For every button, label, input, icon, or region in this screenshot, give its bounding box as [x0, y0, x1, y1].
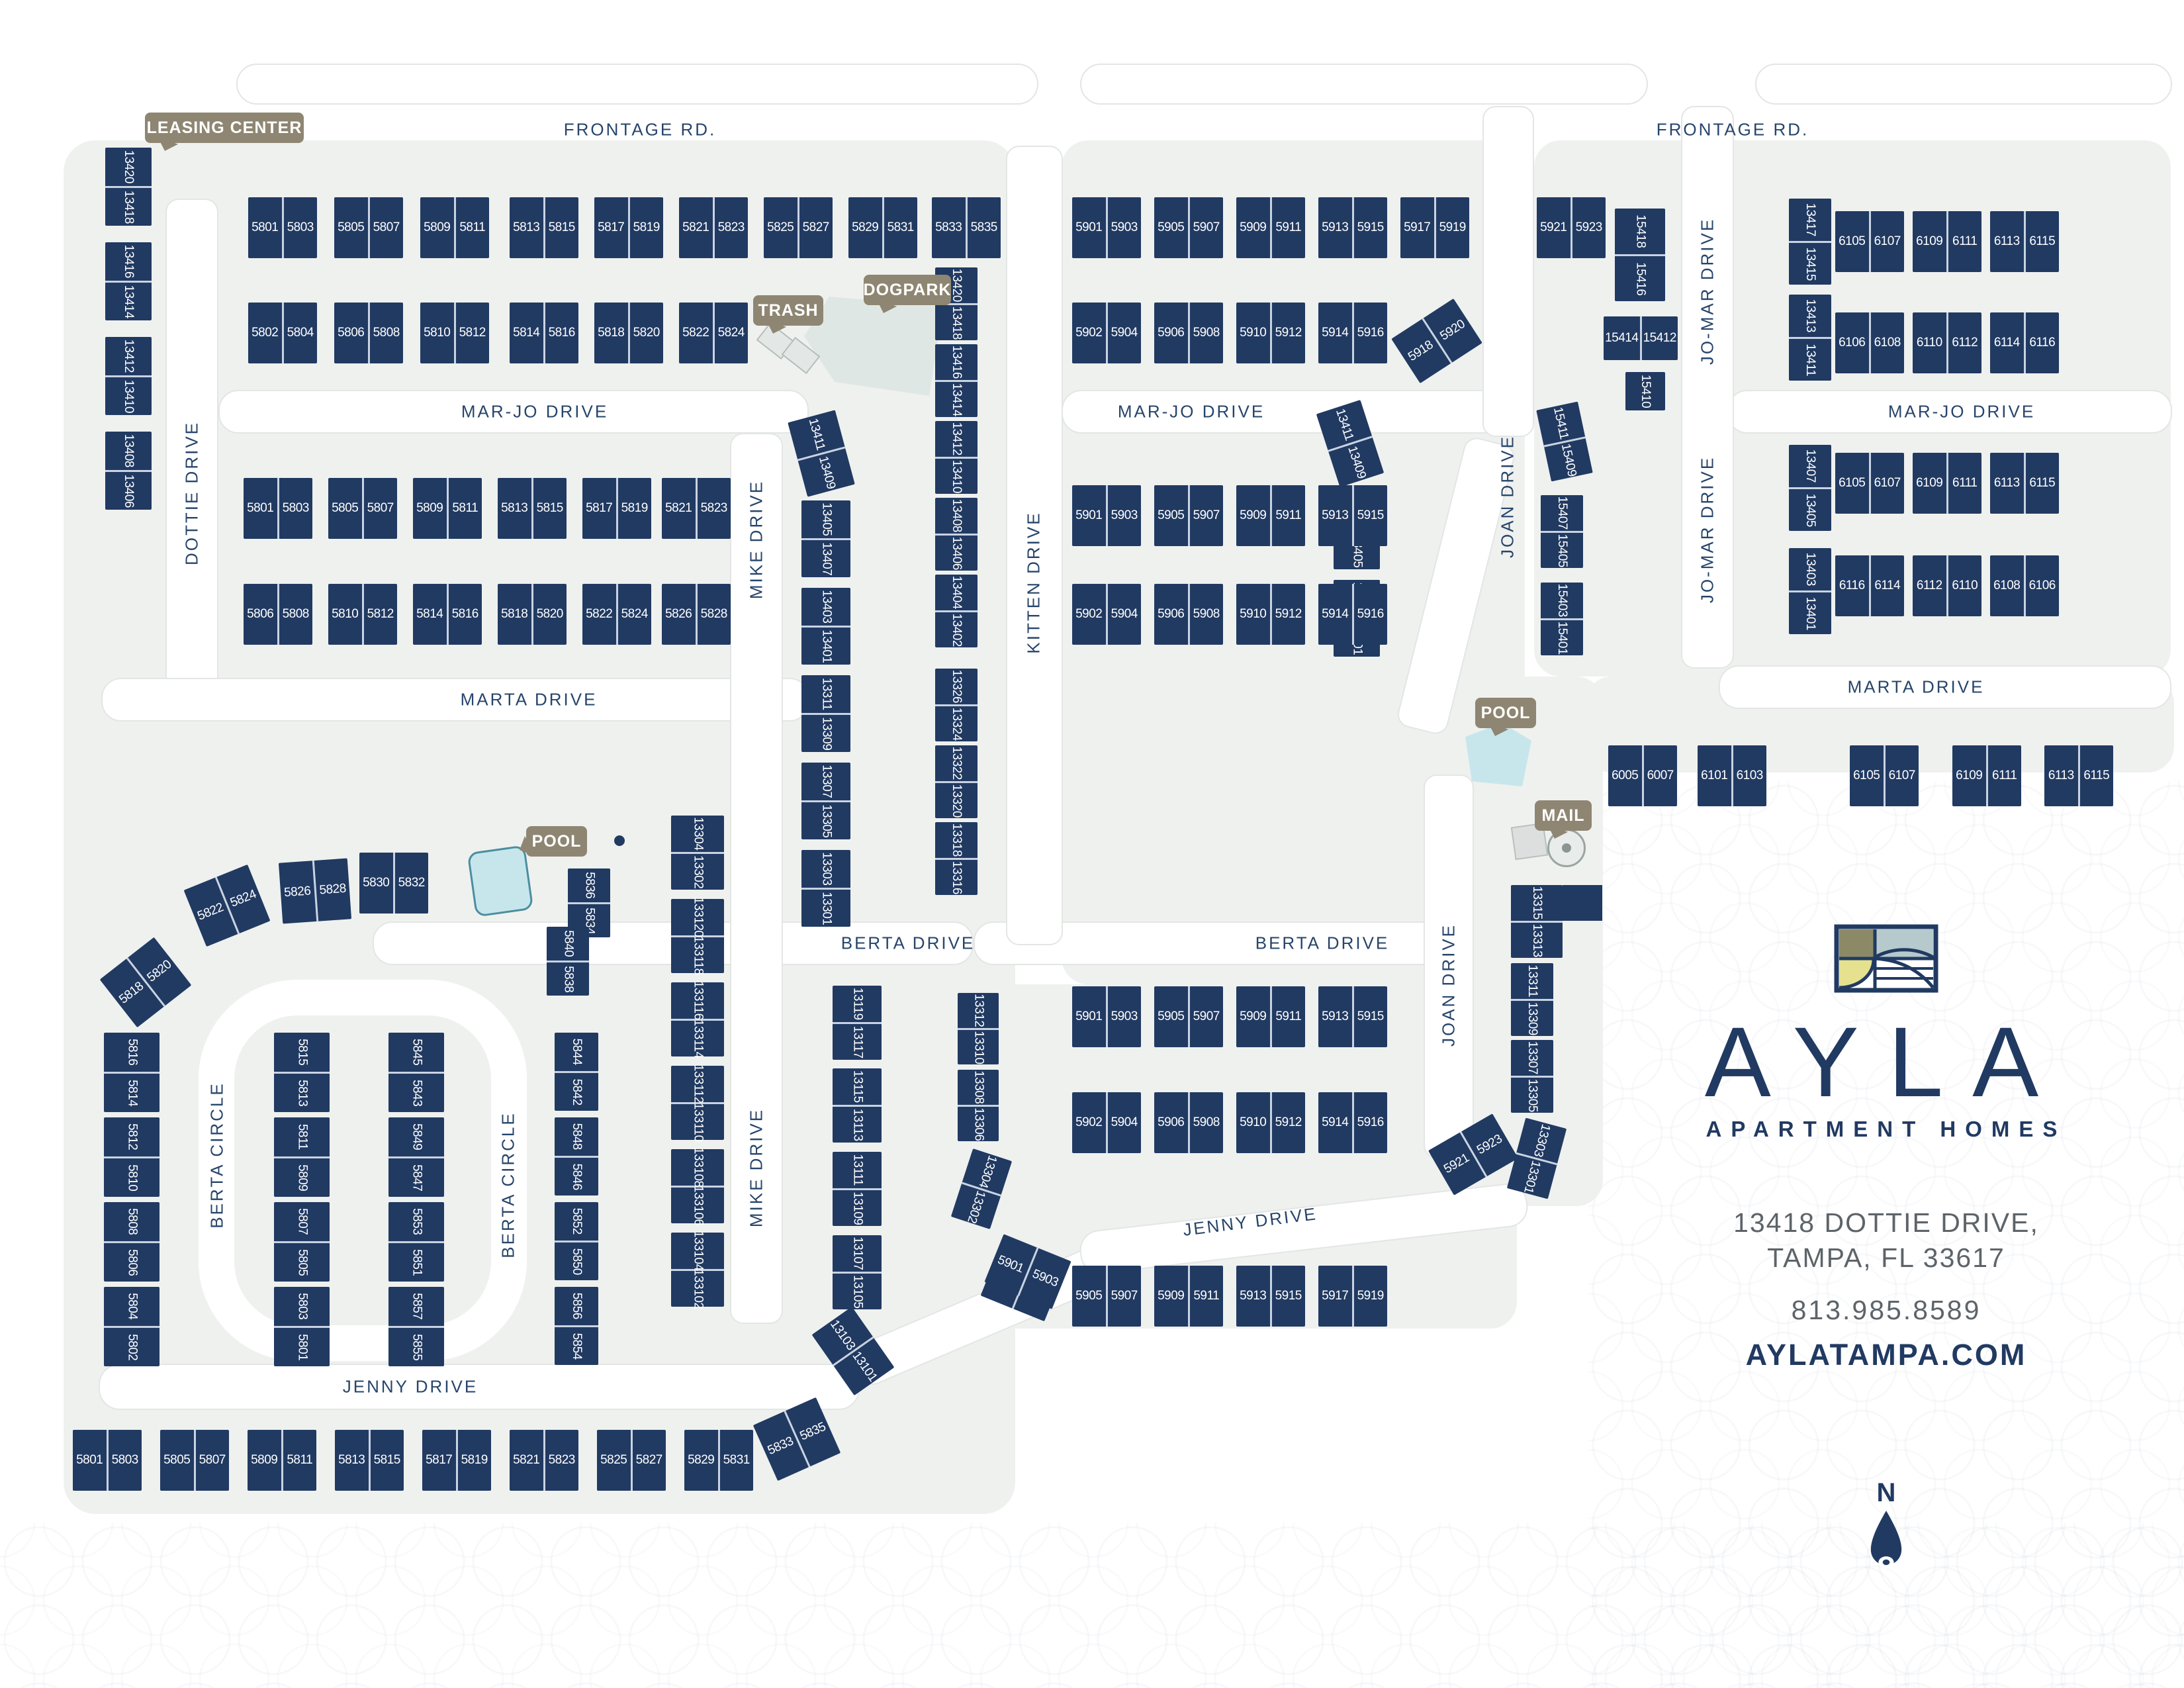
unit-number: 13309 [1514, 997, 1550, 1039]
building-5914-5916: 59145916 [1318, 1092, 1387, 1153]
unit-number: 5802 [248, 303, 282, 363]
unit-number: 5907 [1190, 986, 1224, 1047]
unit-number: 13406 [109, 467, 148, 514]
unit-number: 5902 [1072, 1092, 1106, 1153]
street-label-jo-mar-drive: JO-MAR DRIVE [1698, 218, 1718, 365]
unit-number: 5914 [1318, 584, 1352, 645]
unit-number: 6116 [1835, 555, 1869, 616]
building-13115-13113: 1311513113 [833, 1068, 882, 1143]
building-5902-5904: 59025904 [1072, 584, 1141, 645]
unit-number: 13417 [1789, 199, 1831, 241]
unit-number: 13416 [938, 341, 974, 383]
building-6113-6115: 61136115 [1990, 211, 2059, 272]
unit-number: 5820 [630, 303, 664, 363]
unit-number: 5908 [1190, 1092, 1224, 1153]
building-5814-5816: 58145816 [510, 303, 578, 363]
unit-number: 5825 [764, 197, 797, 258]
building-5826-5828: 58265828 [279, 858, 351, 923]
unit-number: 5817 [422, 1430, 456, 1491]
unit-number: 5805 [334, 197, 368, 258]
unit-number: 13402 [938, 608, 974, 651]
unit-number: 5905 [1154, 986, 1188, 1047]
street-label-mike-drive: MIKE DRIVE [747, 1108, 767, 1227]
unit-number: 5909 [1236, 485, 1270, 546]
building-5906-5908: 59065908 [1154, 584, 1223, 645]
badge-label: MAIL [1541, 806, 1584, 825]
building-wing [1563, 885, 1602, 921]
unit-number: 13301 [807, 884, 845, 933]
unit-number: 13305 [807, 796, 845, 845]
unit-number: 5809 [413, 478, 447, 539]
unit-number: 5805 [160, 1430, 194, 1491]
unit-number: 5804 [284, 303, 318, 363]
building-13315-13313: 1331513313 [1511, 885, 1563, 958]
building-13412-13410: 1341213410 [105, 337, 152, 415]
street-label-berta-drive: BERTA DRIVE [1255, 933, 1390, 954]
unit-number: 6114 [1871, 555, 1905, 616]
unit-number: 5820 [533, 584, 567, 645]
unit-number: 5806 [334, 303, 368, 363]
building-13407-13405: 1340713405 [1789, 445, 1831, 531]
unit-number: 5914 [1318, 1092, 1352, 1153]
building-13307-13305: 1330713305 [801, 763, 850, 839]
badge-label: LEASING CENTER [147, 118, 302, 138]
street-band [1755, 64, 2172, 105]
unit-number: 6007 [1644, 745, 1678, 806]
unit-number: 5801 [283, 1319, 322, 1375]
unit-number: 13414 [938, 378, 974, 420]
unit-number: 5913 [1318, 485, 1352, 546]
unit-number: 13316 [938, 856, 974, 898]
street-label-mar-jo-drive: MAR-JO DRIVE [1888, 402, 2035, 422]
unit-number: 13410 [109, 373, 148, 419]
building-5812-5810: 58125810 [104, 1117, 159, 1197]
building-13119-13117: 1311913117 [833, 986, 882, 1060]
badge-label: POOL [532, 832, 582, 851]
unit-number: 6105 [1835, 211, 1869, 272]
unit-number: 5919 [1436, 197, 1470, 258]
unit-number: 13320 [938, 779, 974, 821]
unit-number: 5844 [557, 1030, 596, 1074]
address-line-1: 13418 DOTTIE DRIVE, [1661, 1205, 2111, 1241]
unit-number: 15403 [1544, 579, 1580, 622]
building-5813-5815: 58135815 [510, 197, 578, 258]
building-15403-15401: 1540315401 [1541, 583, 1583, 655]
unit-number: 6112 [1913, 555, 1946, 616]
street-label-frontage-rd-: FRONTAGE RD. [1657, 120, 1809, 140]
building-5810-5812: 58105812 [328, 584, 397, 645]
unit-number: 5912 [1272, 1092, 1306, 1153]
badge-trash: TRASH [753, 295, 823, 326]
building-13311-13309: 1331113309 [1511, 963, 1553, 1036]
building-6105-6107: 61056107 [1835, 453, 1904, 514]
unit-number: 5833 [932, 197, 966, 258]
badge-label: DOGPARK [864, 281, 952, 300]
building-5905-5907: 59055907 [1154, 986, 1223, 1047]
building-13107-13105: 1310713105 [833, 1235, 882, 1309]
unit-number: 5911 [1272, 485, 1306, 546]
unit-number: 5805 [328, 478, 362, 539]
unit-number: 15410 [1626, 371, 1664, 411]
unit-number: 5902 [1072, 584, 1106, 645]
unit-number: 5903 [1108, 986, 1142, 1047]
building-5813-5815: 58135815 [498, 478, 567, 539]
unit-number: 5822 [582, 584, 616, 645]
website-url: AYLATAMPA.COM [1661, 1338, 2111, 1372]
street-label-berta-circle: BERTA CIRCLE [498, 1111, 519, 1258]
address-line-2: TAMPA, FL 33617 [1661, 1241, 2111, 1276]
building-5902-5904: 59025904 [1072, 1092, 1141, 1153]
building-5829-5831: 58295831 [684, 1430, 753, 1491]
unit-number: 15405 [1544, 529, 1580, 571]
unit-number: 5823 [545, 1430, 579, 1491]
unit-number: 13311 [1514, 960, 1550, 1002]
logo-mark [1661, 923, 2111, 1002]
unit-number: 5825 [597, 1430, 631, 1491]
logo-wordmark: AYLA [1661, 1012, 2111, 1111]
building-13412-13410: 1341213410 [935, 421, 978, 494]
unit-number: 6111 [1948, 453, 1982, 514]
building-13303-13301: 1330313301 [801, 850, 850, 927]
building-5826-5828: 58265828 [662, 584, 731, 645]
building-13404-13402: 1340413402 [935, 575, 978, 647]
building-13318-13316: 1331813316 [935, 822, 978, 895]
building-5825-5827: 58255827 [764, 197, 833, 258]
building-6114-6116: 61146116 [1990, 312, 2059, 373]
unit-number: 13414 [109, 278, 148, 324]
building-133108-133106: 133108133106 [671, 1149, 724, 1223]
unit-number: 13418 [938, 301, 974, 344]
unit-number: 6115 [2080, 745, 2114, 806]
unit-number: 15416 [1617, 254, 1663, 304]
building-13308-13306: 1330813306 [958, 1070, 999, 1141]
building-5830-5832: 58305832 [359, 853, 428, 914]
building-5905-5907: 59055907 [1154, 485, 1223, 546]
unit-number: 13401 [1789, 592, 1831, 634]
unit-number: 5913 [1318, 197, 1352, 258]
building-5822-5824: 58225824 [582, 584, 651, 645]
unit-number: 5811 [283, 1430, 317, 1491]
unit-number: 5814 [413, 584, 447, 645]
unit-number: 5911 [1272, 197, 1306, 258]
building-6116-6114: 61166114 [1835, 555, 1904, 616]
unit-number: 5813 [510, 197, 543, 258]
unit-number: 5826 [279, 861, 316, 923]
building-13413-13411: 1341313411 [1789, 295, 1831, 381]
unit-number: 15412 [1642, 316, 1678, 360]
unit-number: 5801 [73, 1430, 107, 1491]
unit-number: 13324 [938, 702, 974, 745]
building-15410: 15410 [1625, 372, 1665, 410]
unit-number: 5818 [594, 303, 628, 363]
building-5910-5912: 59105912 [1236, 303, 1305, 363]
unit-number: 6105 [1850, 745, 1884, 806]
building-5813-5815: 58135815 [335, 1430, 404, 1491]
unit-number: 5901 [1072, 485, 1106, 546]
unit-number: 13412 [938, 418, 974, 460]
unit-number: 5803 [284, 197, 318, 258]
unit-number: 5915 [1354, 485, 1388, 546]
unit-number: 13407 [807, 534, 845, 583]
building-5814-5816: 58145816 [413, 584, 482, 645]
building-5844-5842: 58445842 [555, 1033, 598, 1111]
building-15418-15416: 1541815416 [1615, 209, 1665, 301]
building-5809-5811: 58095811 [248, 1430, 316, 1491]
unit-number: 5827 [799, 197, 833, 258]
unit-number: 5809 [248, 1430, 281, 1491]
building-6105-6107: 61056107 [1835, 211, 1904, 272]
unit-number: 13403 [1789, 548, 1831, 590]
street-label-dottie-drive: DOTTIE DRIVE [182, 421, 203, 565]
unit-number: 5811 [456, 197, 490, 258]
unit-number: 5907 [1108, 1266, 1142, 1327]
unit-number: 5850 [557, 1239, 596, 1283]
unit-number: 6113 [1990, 211, 2024, 272]
street-label-joan-drive: JOAN DRIVE [1439, 923, 1459, 1047]
spa-dot [614, 835, 625, 846]
building-5856-5854: 58565854 [555, 1287, 598, 1365]
building-5901-5903: 59015903 [1072, 485, 1141, 546]
unit-number: 13313 [1519, 914, 1555, 966]
unit-number: 5910 [1236, 1092, 1270, 1153]
unit-number: 15407 [1544, 492, 1580, 534]
building-13304-13302: 1330413302 [671, 816, 724, 890]
unit-number: 6107 [1871, 211, 1905, 272]
badge-label: TRASH [758, 301, 818, 320]
unit-number: 5828 [698, 584, 731, 645]
unit-number: 6109 [1913, 211, 1946, 272]
unit-number: 5911 [1272, 986, 1306, 1047]
unit-number: 5812 [364, 584, 398, 645]
unit-number: 5821 [510, 1430, 543, 1491]
unit-number: 5814 [510, 303, 543, 363]
building-5817-5819: 58175819 [582, 478, 651, 539]
unit-number: 15414 [1604, 316, 1640, 360]
unit-number: 5832 [395, 853, 429, 914]
unit-number: 5908 [1190, 584, 1224, 645]
building-13403-13401: 1340313401 [1789, 548, 1831, 634]
unit-number: 5801 [244, 478, 277, 539]
building-5917-5919: 59175919 [1400, 197, 1469, 258]
building-133120-133118: 133120133118 [671, 899, 724, 973]
unit-number: 5915 [1354, 986, 1388, 1047]
unit-number: 13412 [109, 333, 148, 379]
unit-number: 6106 [1835, 312, 1869, 373]
unit-number: 5808 [279, 584, 313, 645]
building-5901-5903: 59015903 [1072, 986, 1141, 1047]
building-5909-5911: 59095911 [1236, 197, 1305, 258]
unit-number: 5906 [1154, 1092, 1188, 1153]
unit-number: 6109 [1952, 745, 1986, 806]
building-15407-15405: 1540715405 [1541, 495, 1583, 568]
unit-number: 13416 [109, 238, 148, 285]
unit-number: 13410 [938, 455, 974, 497]
unit-number: 6114 [1990, 312, 2024, 373]
unit-number: 5807 [364, 478, 398, 539]
unit-number: 5909 [1154, 1266, 1188, 1327]
unit-number: 5830 [359, 853, 393, 914]
unit-number: 5815 [371, 1430, 404, 1491]
building-5808-5806: 58085806 [104, 1202, 159, 1282]
unit-number: 5855 [397, 1319, 436, 1375]
brand-block: AYLA APARTMENT HOMES 13418 DOTTIE DRIVE,… [1661, 923, 2111, 1589]
unit-number: 15401 [1544, 616, 1580, 659]
unit-number: 15409 [1547, 436, 1590, 485]
unit-number: 5807 [370, 197, 404, 258]
building-5910-5912: 59105912 [1236, 1092, 1305, 1153]
unit-number: 5915 [1354, 197, 1388, 258]
unit-number: 13322 [938, 742, 974, 784]
building-5909-5911: 59095911 [1236, 986, 1305, 1047]
building-5905-5907: 59055907 [1072, 1266, 1141, 1327]
unit-number: 5852 [557, 1199, 596, 1243]
unit-number: 5817 [582, 478, 616, 539]
building-13311-13309: 1331113309 [801, 675, 850, 752]
building-5801-5803: 58015803 [244, 478, 312, 539]
building-5805-5807: 58055807 [160, 1430, 229, 1491]
building-5853-5851: 58535851 [388, 1202, 444, 1282]
unit-number: 6109 [1913, 453, 1946, 514]
building-5802-5804: 58025804 [248, 303, 317, 363]
building-5805-5807: 58055807 [334, 197, 403, 258]
building-5909-5911: 59095911 [1236, 485, 1305, 546]
unit-number: 6113 [1990, 453, 2024, 514]
unit-number: 5821 [679, 197, 713, 258]
unit-number: 13405 [1789, 489, 1831, 531]
unit-number: 5901 [1072, 197, 1106, 258]
building-5817-5819: 58175819 [594, 197, 663, 258]
unit-number: 13310 [961, 1027, 996, 1068]
unit-number: 13411 [1789, 338, 1831, 381]
unit-number: 5827 [633, 1430, 666, 1491]
building-13408-13406: 1340813406 [105, 432, 152, 510]
unit-number: 5812 [456, 303, 490, 363]
street-label-marta-drive: MARTA DRIVE [461, 690, 598, 710]
unit-number: 13420 [109, 144, 148, 190]
badge-mail: MAIL [1535, 800, 1592, 831]
unit-number: 13305 [1514, 1074, 1550, 1116]
unit-number: 5813 [498, 478, 531, 539]
building-13312-13310: 1331213310 [958, 993, 999, 1064]
unit-number: 5921 [1537, 197, 1570, 258]
unit-number: 13109 [839, 1184, 876, 1233]
unit-number: 5819 [458, 1430, 492, 1491]
building-5914-5916: 59145916 [1318, 303, 1387, 363]
unit-number: 5823 [698, 478, 731, 539]
phone-number: 813.985.8589 [1661, 1295, 2111, 1326]
building-13403-13401: 1340313401 [801, 588, 850, 665]
unit-number: 5815 [533, 478, 567, 539]
unit-number: 5810 [328, 584, 362, 645]
unit-number: 6115 [2026, 211, 2060, 272]
unit-number: 5914 [1318, 303, 1352, 363]
street-band [99, 1364, 860, 1410]
building-5909-5911: 59095911 [1154, 1266, 1223, 1327]
unit-number: 5824 [618, 584, 652, 645]
unit-number: 5915 [1272, 1266, 1306, 1327]
building-5913-5915: 59135915 [1318, 197, 1387, 258]
unit-number: 5905 [1072, 1266, 1106, 1327]
building-6005-6007: 60056007 [1608, 745, 1677, 806]
badge-dogpark: DOGPARK [864, 275, 951, 305]
unit-number: 5916 [1354, 303, 1388, 363]
unit-number: 5923 [1572, 197, 1606, 258]
unit-number: 6103 [1733, 745, 1767, 806]
unit-number: 6116 [2026, 312, 2060, 373]
unit-number: 5819 [630, 197, 664, 258]
unit-number: 5829 [848, 197, 882, 258]
building-5821-5823: 58215823 [679, 197, 748, 258]
unit-number: 5838 [551, 958, 585, 1000]
unit-number: 5911 [1190, 1266, 1224, 1327]
unit-number: 15418 [1617, 206, 1663, 256]
street-label-mar-jo-drive: MAR-JO DRIVE [1118, 402, 1265, 422]
unit-number: 5813 [335, 1430, 369, 1491]
unit-number: 13408 [938, 494, 974, 537]
building-5816-5814: 58165814 [104, 1033, 159, 1112]
building-5902-5904: 59025904 [1072, 303, 1141, 363]
unit-number: 5916 [1354, 1092, 1388, 1153]
building-133112-133110: 133112133110 [671, 1066, 724, 1140]
unit-number: 5803 [279, 478, 313, 539]
building-13405-13407: 1340513407 [801, 500, 850, 577]
unit-number: 5910 [1236, 584, 1270, 645]
unit-number: 13307 [1514, 1037, 1550, 1079]
berta-circle-loop-road [199, 980, 527, 1361]
unit-number: 5854 [557, 1324, 596, 1368]
building-5818-5820: 58185820 [594, 303, 663, 363]
badge-pool: POOL [526, 826, 587, 857]
unit-number: 13413 [1789, 295, 1831, 337]
street-label-frontage-rd-: FRONTAGE RD. [564, 120, 717, 140]
unit-number: 5826 [662, 584, 696, 645]
unit-number: 5831 [720, 1430, 754, 1491]
building-133104-133102: 133104133102 [671, 1233, 724, 1307]
unit-number: 5816 [449, 584, 482, 645]
unit-number: 6005 [1608, 745, 1642, 806]
unit-number: 6108 [1990, 555, 2024, 616]
building-5921-5923: 59215923 [1537, 197, 1606, 258]
building-6106-6108: 61066108 [1835, 312, 1904, 373]
unit-number: 6106 [2026, 555, 2060, 616]
unit-number: 5903 [1108, 485, 1142, 546]
unit-number: 6105 [1835, 453, 1869, 514]
unit-number: 5910 [1236, 303, 1270, 363]
unit-number: 5823 [715, 197, 749, 258]
unit-number: 5907 [1190, 485, 1224, 546]
unit-number: 5831 [884, 197, 918, 258]
building-5806-5808: 58065808 [334, 303, 403, 363]
site-map: FRONTAGE RD.FRONTAGE RD.MAR-JO DRIVEMAR-… [0, 0, 2184, 1688]
unit-number: 6112 [1948, 312, 1982, 373]
building-6110-6112: 61106112 [1913, 312, 1981, 373]
building-5840-5838: 58405838 [547, 927, 589, 996]
building-5810-5812: 58105812 [420, 303, 489, 363]
unit-number: 6107 [1871, 453, 1905, 514]
unit-number: 5856 [557, 1284, 596, 1328]
compass-icon [1661, 1509, 2111, 1589]
street-label-jo-mar-drive: JO-MAR DRIVE [1698, 456, 1718, 603]
unit-number: 5846 [557, 1154, 596, 1198]
unit-number: 6115 [2026, 453, 2060, 514]
building-5917-5919: 59175919 [1318, 1266, 1387, 1327]
unit-number: 6101 [1698, 745, 1731, 806]
unit-number: 5902 [1072, 303, 1106, 363]
building-6109-6111: 61096111 [1913, 211, 1981, 272]
unit-number: 5917 [1318, 1266, 1352, 1327]
building-13416-13414: 1341613414 [105, 242, 152, 320]
unit-number: 5801 [248, 197, 282, 258]
